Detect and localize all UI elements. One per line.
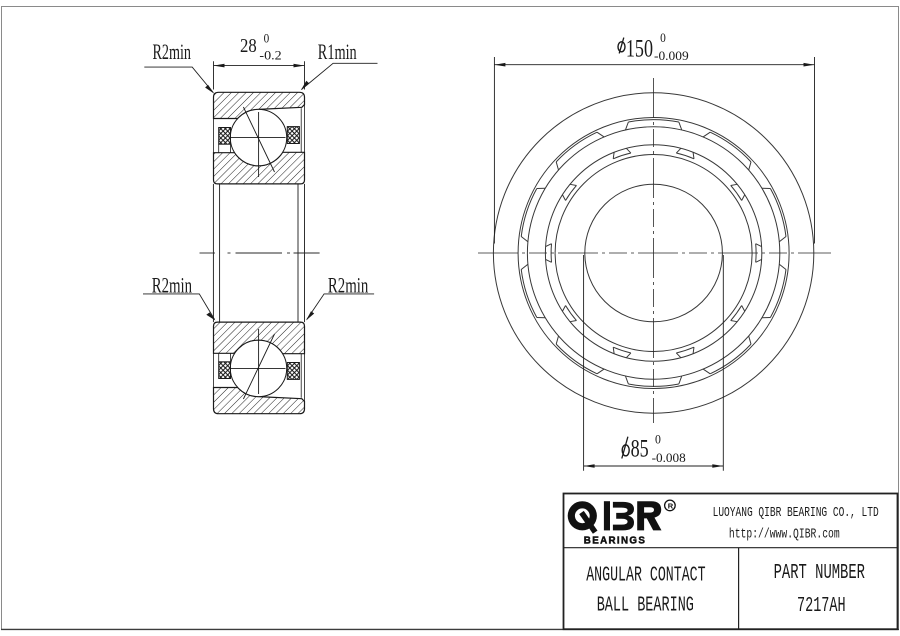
svg-text:ANGULAR CONTACT: ANGULAR CONTACT [586, 563, 705, 587]
svg-text:-0.2: -0.2 [259, 48, 281, 63]
svg-text:BEARINGS: BEARINGS [584, 535, 646, 546]
svg-text:R: R [668, 501, 674, 510]
svg-text:R1min: R1min [318, 39, 357, 64]
svg-text:LUOYANG QIBR BEARING CO., LTD: LUOYANG QIBR BEARING CO., LTD [713, 505, 879, 521]
svg-text:28: 28 [240, 35, 257, 57]
svg-text:7217AH: 7217AH [797, 594, 846, 618]
svg-text:R2min: R2min [328, 272, 368, 297]
svg-text:-0.009: -0.009 [654, 48, 689, 63]
svg-text:http://www.QIBR.com: http://www.QIBR.com [729, 527, 840, 543]
svg-text:0: 0 [264, 31, 270, 46]
svg-text:0: 0 [655, 432, 661, 447]
svg-text:R2min: R2min [153, 39, 192, 64]
svg-text:0: 0 [660, 30, 666, 45]
svg-text:BALL BEARING: BALL BEARING [597, 593, 694, 617]
svg-text:R2min: R2min [152, 272, 192, 297]
svg-text:150: 150 [626, 35, 653, 63]
svg-text:85: 85 [631, 435, 649, 462]
svg-text:-0.008: -0.008 [652, 450, 686, 465]
svg-text:PART NUMBER: PART NUMBER [774, 561, 865, 585]
